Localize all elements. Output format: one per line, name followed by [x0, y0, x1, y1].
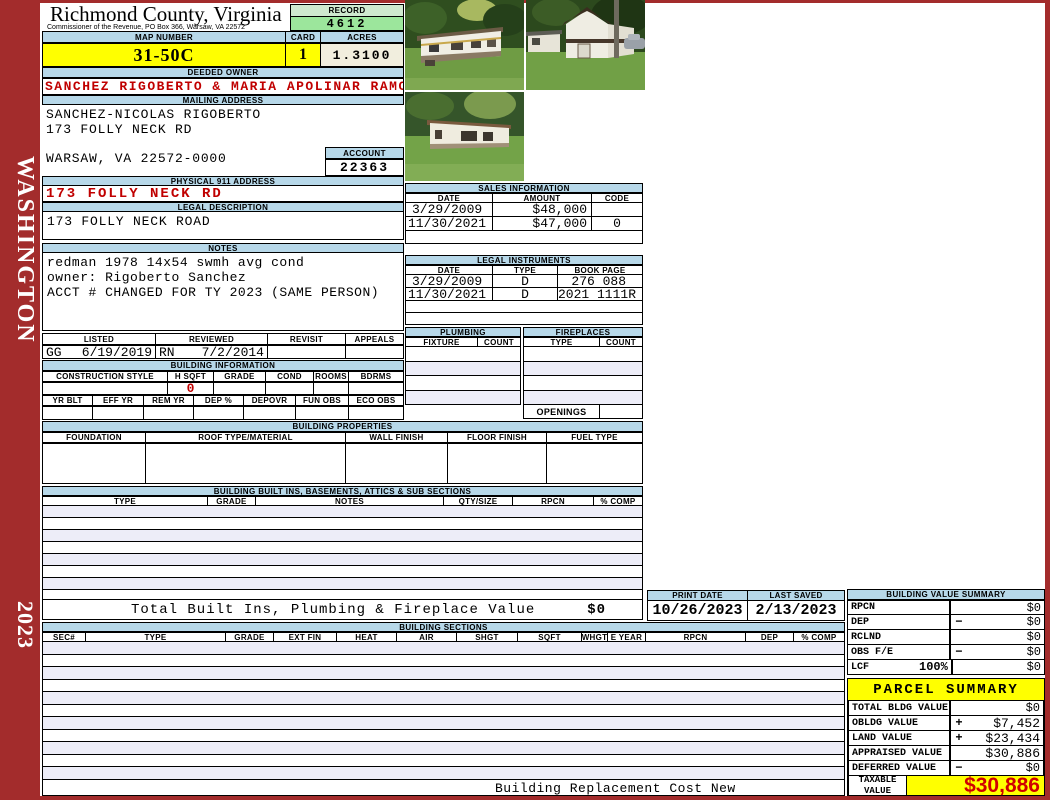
building-properties-values: [42, 443, 643, 484]
section-dep-header: DEP: [746, 633, 794, 641]
building-replacement-label: Building Replacement Cost New: [495, 781, 736, 796]
section-comp-header: % COMP: [794, 633, 844, 641]
legal-instrument-row-1: 3/29/2009 D 276 088: [405, 275, 643, 288]
reviewed-header: REVIEWED: [156, 334, 268, 344]
sales-code-header: CODE: [592, 194, 642, 202]
total-bldg-label: TOTAL BLDG VALUE: [848, 701, 950, 716]
taxable-label: TAXABLE VALUE: [848, 776, 907, 796]
fireplaces-headers: TYPE COUNT: [523, 337, 643, 347]
acres-label: ACRES: [321, 32, 403, 42]
instrument-date: 3/29/2009: [406, 275, 493, 287]
built-ins-type-header: TYPE: [43, 497, 208, 505]
sales-headers: DATE AMOUNT CODE: [405, 193, 643, 203]
appeals-header: APPEALS: [346, 334, 403, 344]
mailing-line-3: WARSAW, VA 22572-0000: [46, 151, 227, 166]
parcel-summary: PARCEL SUMMARY TOTAL BLDG VALUE $0 OBLDG…: [847, 678, 1045, 796]
deeded-owner-value: SANCHEZ RIGOBERTO & MARIA APOLINAR RAMOS…: [42, 78, 404, 95]
foundation-value: [43, 444, 146, 483]
section-rpcn-header: RPCN: [646, 633, 746, 641]
land-op: +: [955, 731, 962, 745]
instrument-bookpage: 276 088: [558, 275, 642, 287]
funobs-value: [296, 407, 349, 419]
deferred-label: DEFERRED VALUE: [848, 761, 950, 776]
built-ins-comp-header: % COMP: [594, 497, 642, 505]
openings-label: OPENINGS: [524, 405, 600, 418]
eyear-header: E YEAR: [608, 633, 646, 641]
obldg-value: $7,452: [993, 716, 1040, 731]
openings-row: OPENINGS: [523, 405, 643, 419]
whgt-header: WHGT: [582, 633, 608, 641]
plumbing-count-header: COUNT: [478, 338, 520, 346]
built-ins-headers: TYPE GRADE NOTES QTY/SIZE RPCN % COMP: [42, 496, 643, 506]
physical-address-value: 173 FOLLY NECK RD: [42, 186, 404, 202]
grade-value: [214, 383, 266, 394]
building-sections-footer-row: Building Replacement Cost New: [42, 780, 845, 796]
section-type-header: TYPE: [86, 633, 226, 641]
section-grade-header: GRADE: [226, 633, 274, 641]
plumbing-label: PLUMBING: [405, 327, 521, 337]
legal-description-value: 173 FOLLY NECK ROAD: [47, 214, 210, 229]
deferred-op: −: [955, 761, 962, 775]
notes-block: redman 1978 14x54 swmh avg cond owner: R…: [42, 253, 404, 331]
fixture-header: FIXTURE: [406, 338, 478, 346]
instrument-bookpage: 2021 1111R: [558, 288, 642, 300]
lcf-percent: 100%: [919, 660, 948, 674]
deferred-value: $0: [1026, 761, 1040, 775]
rclnd-value: $0: [1027, 630, 1041, 644]
plumbing-headers: FIXTURE COUNT: [405, 337, 521, 347]
sec-num-header: SEC#: [43, 633, 86, 641]
visits-values: GG 6/19/2019 RN 7/2/2014: [42, 345, 404, 359]
building-properties-headers: FOUNDATION ROOF TYPE/MATERIAL WALL FINIS…: [42, 432, 643, 443]
built-ins-qty-header: QTY/SIZE: [444, 497, 513, 505]
built-ins-rpcn-header: RPCN: [513, 497, 594, 505]
dep-op: −: [955, 615, 962, 629]
map-card-acres-values: 31-50C 1 1.3100: [42, 43, 404, 67]
sales-empty-row: [405, 231, 643, 244]
obs-fe-value: $0: [1027, 645, 1041, 659]
bdrms-header: BDRMS: [349, 372, 403, 381]
appeals-cell: [346, 346, 403, 358]
wall-finish-header: WALL FINISH: [346, 433, 448, 442]
built-ins-total-row: Total Built Ins, Plumbing & Fireplace Va…: [42, 600, 643, 620]
card-label: CARD: [286, 32, 321, 42]
building-sections-headers: SEC# TYPE GRADE EXT FIN HEAT AIR SHGT SQ…: [42, 632, 845, 642]
openings-value: [600, 405, 642, 418]
effyr-header: EFF YR: [93, 396, 144, 405]
hsqft-value: 0: [168, 383, 214, 394]
print-info-headers: PRINT DATE LAST SAVED: [647, 590, 845, 601]
legal-description-label: LEGAL DESCRIPTION: [42, 202, 404, 212]
legal-description-block: 173 FOLLY NECK ROAD: [42, 212, 404, 240]
obs-fe-op: −: [955, 645, 962, 659]
construction-style-value: [43, 383, 168, 394]
fireplace-count-header: COUNT: [600, 338, 642, 346]
lcf-label-cell: LCF 100%: [847, 660, 952, 675]
legal-instruments-empty-row: [405, 301, 643, 313]
legal-instrument-row-2: 11/30/2021 D 2021 1111R: [405, 288, 643, 301]
reviewed-date: 7/2/2014: [202, 346, 264, 358]
air-header: AIR: [397, 633, 457, 641]
last-saved-value: 2/13/2023: [748, 601, 844, 620]
heat-header: HEAT: [337, 633, 397, 641]
obldg-op: +: [955, 716, 962, 730]
fireplaces-label: FIREPLACES: [523, 327, 643, 337]
sale-code: [592, 203, 642, 216]
building-info-row2-headers: YR BLT EFF YR REM YR DEP % DEPOVR FUN OB…: [42, 395, 404, 406]
taxable-value: $30,886: [907, 776, 1044, 796]
building-properties-label: BUILDING PROPERTIES: [42, 421, 643, 432]
sales-row-2: 11/30/2021 $47,000 0: [405, 217, 643, 231]
floor-finish-value: [448, 444, 547, 483]
listed-by: GG: [46, 346, 62, 358]
dep-pct-value: [194, 407, 244, 419]
legal-instruments-headers: DATE TYPE BOOK PAGE: [405, 265, 643, 275]
rooms-value: [314, 383, 349, 394]
built-ins-total-value: $0: [587, 602, 606, 618]
hsqft-header: H SQFT: [168, 372, 214, 381]
building-info-row1-headers: CONSTRUCTION STYLE H SQFT GRADE COND ROO…: [42, 371, 404, 382]
record-value: 4612: [290, 16, 404, 31]
revisit-cell: [268, 346, 346, 358]
revisit-header: REVISIT: [268, 334, 346, 344]
shgt-header: SHGT: [457, 633, 518, 641]
map-number-label: MAP NUMBER: [43, 32, 286, 42]
ecoobs-header: ECO OBS: [349, 396, 403, 405]
reviewed-by: RN: [159, 346, 175, 358]
tax-year: 2023: [4, 582, 38, 667]
account-label: ACCOUNT: [325, 147, 404, 159]
built-ins-total-label: Total Built Ins, Plumbing & Fireplace Va…: [131, 602, 535, 618]
account-value: 22363: [325, 159, 404, 176]
built-ins-empty-rows: [42, 506, 643, 600]
legal-instruments-empty-row: [405, 313, 643, 325]
lcf-value: $0: [1027, 660, 1041, 674]
building-info-row2-values: [42, 406, 404, 420]
remyr-header: REM YR: [144, 396, 194, 405]
depovr-value: [244, 407, 296, 419]
dep-pct-header: DEP %: [194, 396, 244, 405]
grade-header: GRADE: [214, 372, 266, 381]
sqft-header: SQFT: [518, 633, 582, 641]
map-number-value: 31-50C: [43, 44, 286, 66]
frame-right: [1045, 0, 1050, 800]
rpcn-label: RPCN: [847, 600, 950, 615]
property-record-card: WASHINGTON 2023 Richmond County, Virgini…: [0, 0, 1050, 800]
fuel-type-value: [547, 444, 642, 483]
notes-line-1: redman 1978 14x54 swmh avg cond: [47, 255, 304, 270]
cond-value: [266, 383, 314, 394]
mailing-line-1: SANCHEZ-NICOLAS RIGOBERTO: [46, 107, 261, 122]
listed-cell: GG 6/19/2019: [43, 346, 156, 358]
mailing-address-label: MAILING ADDRESS: [42, 95, 404, 105]
sales-date-header: DATE: [406, 194, 493, 202]
instrument-bookpage-header: BOOK PAGE: [558, 266, 642, 274]
yrblt-value: [43, 407, 93, 419]
yrblt-header: YR BLT: [43, 396, 93, 405]
notes-label: NOTES: [42, 243, 404, 253]
appraised-label: APPRAISED VALUE: [848, 746, 950, 761]
total-bldg-value: $0: [1026, 701, 1040, 715]
mailing-line-2: 173 FOLLY NECK RD: [46, 122, 192, 137]
construction-style-header: CONSTRUCTION STYLE: [43, 372, 168, 381]
instrument-type: D: [493, 288, 558, 300]
land-value: $23,434: [985, 731, 1040, 746]
instrument-type: D: [493, 275, 558, 287]
ecoobs-value: [349, 407, 403, 419]
notes-line-2: owner: Rigoberto Sanchez: [47, 270, 246, 285]
built-ins-grade-header: GRADE: [208, 497, 256, 505]
deeded-owner-label: DEEDED OWNER: [42, 67, 404, 78]
depovr-header: DEPOVR: [244, 396, 296, 405]
listed-date: 6/19/2019: [82, 346, 152, 358]
plumbing-empty-rows: [405, 347, 521, 405]
land-value-label: LAND VALUE: [848, 731, 950, 746]
property-photo-shed: [526, 0, 645, 90]
parcel-summary-title: PARCEL SUMMARY: [848, 679, 1044, 701]
roof-type-value: [146, 444, 346, 483]
rooms-header: ROOMS: [314, 372, 349, 381]
visits-headers: LISTED REVIEWED REVISIT APPEALS: [42, 333, 404, 345]
property-photo-rear: [405, 92, 524, 181]
county-title: Richmond County, Virginia: [50, 2, 292, 24]
district-name: WASHINGTON: [4, 155, 38, 345]
effyr-value: [93, 407, 144, 419]
sales-amount-header: AMOUNT: [493, 194, 592, 202]
print-date-header: PRINT DATE: [648, 591, 748, 600]
obs-fe-label: OBS F/E: [847, 645, 950, 660]
sale-code: 0: [592, 217, 642, 230]
foundation-header: FOUNDATION: [43, 433, 146, 442]
building-value-summary-label: BUILDING VALUE SUMMARY: [847, 589, 1045, 600]
listed-header: LISTED: [43, 334, 156, 344]
district-sidebar: WASHINGTON 2023: [0, 0, 40, 800]
instrument-date: 11/30/2021: [406, 288, 493, 300]
building-value-summary: RPCN $0 DEP −$0 RCLND $0 OBS F/E −$0 LCF…: [847, 600, 1045, 675]
building-info-row1-values: 0: [42, 382, 404, 395]
physical-address-label: PHYSICAL 911 ADDRESS: [42, 176, 404, 186]
built-ins-label: BUILDING BUILT INS, BASEMENTS, ATTICS & …: [42, 486, 643, 496]
last-saved-header: LAST SAVED: [748, 591, 844, 600]
print-date-value: 10/26/2023: [648, 601, 748, 620]
instrument-date-header: DATE: [406, 266, 493, 274]
frame-bottom: [40, 796, 1045, 800]
bdrms-value: [349, 383, 403, 394]
roof-type-header: ROOF TYPE/MATERIAL: [146, 433, 346, 442]
map-card-acres-headers: MAP NUMBER CARD ACRES: [42, 31, 404, 43]
instrument-type-header: TYPE: [493, 266, 558, 274]
sale-amount: $48,000: [493, 203, 592, 216]
sale-date: 11/30/2021: [406, 217, 493, 230]
fuel-type-header: FUEL TYPE: [547, 433, 642, 442]
fireplace-type-header: TYPE: [524, 338, 600, 346]
print-info-values: 10/26/2023 2/13/2023: [647, 601, 845, 621]
funobs-header: FUN OBS: [296, 396, 349, 405]
building-sections-empty-rows: [42, 642, 845, 780]
building-sections-label: BUILDING SECTIONS: [42, 622, 845, 632]
card-value: 1: [286, 44, 321, 66]
dep-value: $0: [1027, 615, 1041, 629]
built-ins-notes-header: NOTES: [256, 497, 444, 505]
sales-row-1: 3/29/2009 $48,000: [405, 203, 643, 217]
appraised-value: $30,886: [985, 746, 1040, 761]
remyr-value: [144, 407, 194, 419]
building-information-label: BUILDING INFORMATION: [42, 360, 404, 371]
reviewed-cell: RN 7/2/2014: [156, 346, 268, 358]
floor-finish-header: FLOOR FINISH: [448, 433, 547, 442]
property-photo-front: [405, 0, 524, 90]
fireplaces-empty-rows: [523, 347, 643, 405]
cond-header: COND: [266, 372, 314, 381]
rpcn-value: $0: [1027, 601, 1041, 615]
lcf-label: LCF: [851, 662, 869, 673]
acres-value: 1.3100: [321, 44, 403, 66]
legal-instruments-label: LEGAL INSTRUMENTS: [405, 255, 643, 265]
sales-information-label: SALES INFORMATION: [405, 183, 643, 193]
notes-line-3: ACCT # CHANGED FOR TY 2023 (SAME PERSON): [47, 285, 379, 300]
rclnd-label: RCLND: [847, 630, 950, 645]
obldg-label: OBLDG VALUE: [848, 716, 950, 731]
sale-amount: $47,000: [493, 217, 592, 230]
wall-finish-value: [346, 444, 448, 483]
sale-date: 3/29/2009: [406, 203, 493, 216]
ext-fin-header: EXT FIN: [274, 633, 337, 641]
dep-label: DEP: [847, 615, 950, 630]
